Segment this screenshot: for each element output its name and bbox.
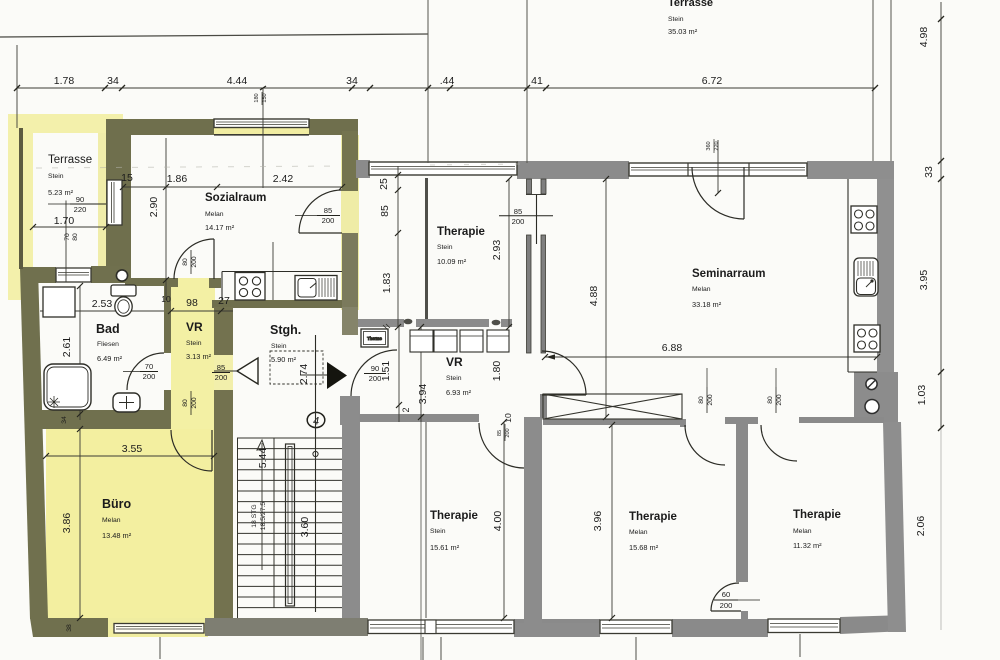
svg-text:Stein: Stein	[48, 173, 64, 180]
svg-text:Therapie: Therapie	[437, 226, 485, 238]
svg-text:90: 90	[76, 195, 84, 204]
svg-text:3.94: 3.94	[417, 384, 429, 405]
svg-text:Therapie: Therapie	[629, 511, 677, 523]
svg-text:Bad: Bad	[96, 322, 120, 336]
svg-text:10: 10	[503, 413, 513, 423]
svg-text:200: 200	[512, 217, 525, 226]
svg-text:5.44: 5.44	[257, 448, 269, 469]
svg-text:85: 85	[324, 206, 332, 215]
svg-text:35.03 m²: 35.03 m²	[668, 27, 698, 36]
svg-text:3.96: 3.96	[592, 511, 604, 532]
svg-text:200: 200	[322, 216, 335, 225]
svg-text:150: 150	[262, 93, 268, 102]
svg-text:2.93: 2.93	[491, 240, 503, 261]
svg-text:220: 220	[74, 205, 87, 214]
svg-text:Therapie: Therapie	[430, 510, 478, 522]
svg-text:VR: VR	[186, 320, 203, 334]
svg-text:3.95: 3.95	[918, 270, 930, 291]
svg-text:3.86: 3.86	[61, 513, 73, 534]
svg-text:80: 80	[72, 233, 79, 241]
svg-text:2: 2	[401, 407, 411, 412]
svg-text:38: 38	[66, 624, 73, 632]
svg-text:15.68 m²: 15.68 m²	[629, 543, 659, 552]
svg-text:1.51: 1.51	[380, 361, 392, 382]
svg-text:3.13 m²: 3.13 m²	[186, 352, 212, 361]
svg-text:70: 70	[64, 233, 71, 241]
svg-text:1.78: 1.78	[54, 75, 75, 87]
svg-text:34: 34	[61, 416, 68, 424]
svg-text:1.80: 1.80	[491, 361, 503, 382]
svg-text:5.90 m²: 5.90 m²	[271, 355, 297, 364]
svg-text:15.61 m²: 15.61 m²	[430, 543, 460, 552]
svg-text:14.17 m²: 14.17 m²	[205, 223, 235, 232]
svg-text:2.90: 2.90	[148, 197, 160, 218]
svg-text:80: 80	[182, 399, 189, 407]
svg-text:200: 200	[776, 394, 783, 406]
svg-text:85: 85	[497, 430, 503, 436]
svg-text:2.06: 2.06	[915, 516, 927, 537]
svg-text:70: 70	[145, 362, 153, 371]
svg-text:6.49 m²: 6.49 m²	[97, 354, 123, 363]
svg-text:1.83: 1.83	[381, 273, 393, 294]
svg-text:Therme: Therme	[367, 336, 382, 341]
svg-text:.44: .44	[440, 75, 455, 87]
svg-text:85: 85	[379, 205, 391, 217]
svg-text:34: 34	[107, 75, 119, 87]
svg-text:200: 200	[191, 397, 198, 409]
svg-text:85: 85	[217, 363, 225, 372]
svg-text:10.09 m²: 10.09 m²	[437, 257, 467, 266]
svg-text:200: 200	[215, 373, 228, 382]
svg-text:3.55: 3.55	[122, 443, 143, 455]
svg-text:18 STG: 18 STG	[251, 504, 258, 527]
svg-text:13.48 m²: 13.48 m²	[102, 531, 132, 540]
svg-text:200: 200	[505, 428, 511, 437]
svg-text:27: 27	[218, 295, 230, 307]
svg-text:Melan: Melan	[205, 211, 224, 218]
svg-text:2.42: 2.42	[273, 173, 294, 185]
svg-text:Melan: Melan	[629, 529, 648, 536]
svg-text:33: 33	[923, 166, 935, 178]
svg-text:98: 98	[186, 297, 198, 309]
svg-text:80: 80	[767, 396, 774, 404]
svg-text:Stein: Stein	[446, 375, 462, 382]
svg-text:Therapie: Therapie	[793, 509, 841, 521]
svg-text:Fliesen: Fliesen	[97, 341, 119, 348]
svg-text:Stgh.: Stgh.	[270, 323, 301, 337]
svg-text:200: 200	[720, 601, 733, 610]
svg-text:25: 25	[378, 178, 390, 190]
svg-text:85: 85	[514, 207, 522, 216]
svg-text:Melan: Melan	[692, 286, 711, 293]
svg-text:Seminarraum: Seminarraum	[692, 268, 766, 280]
svg-text:200: 200	[143, 372, 156, 381]
svg-text:VR: VR	[446, 355, 463, 369]
svg-text:41: 41	[531, 75, 543, 87]
svg-text:4.44: 4.44	[227, 75, 248, 87]
svg-text:220: 220	[714, 141, 720, 150]
svg-text:200: 200	[191, 256, 198, 268]
svg-text:Melan: Melan	[102, 517, 121, 524]
svg-text:1.03: 1.03	[916, 385, 928, 406]
svg-text:18.5/27.5: 18.5/27.5	[260, 502, 267, 531]
svg-text:4.00: 4.00	[492, 511, 504, 532]
svg-text:2.53: 2.53	[92, 298, 113, 310]
svg-text:Melan: Melan	[793, 528, 812, 535]
svg-text:1.86: 1.86	[167, 173, 188, 185]
svg-text:80: 80	[182, 258, 189, 266]
svg-text:6.93 m²: 6.93 m²	[446, 388, 472, 397]
svg-text:200: 200	[707, 394, 714, 406]
svg-text:Sozialraum: Sozialraum	[205, 192, 266, 204]
svg-text:15: 15	[121, 172, 133, 184]
svg-text:2.61: 2.61	[61, 337, 73, 358]
svg-text:10: 10	[161, 294, 171, 304]
svg-text:1.70: 1.70	[54, 215, 75, 227]
svg-text:33.18 m²: 33.18 m²	[692, 300, 722, 309]
svg-text:Stein: Stein	[430, 528, 446, 535]
svg-text:180: 180	[254, 93, 260, 102]
svg-text:Stein: Stein	[668, 16, 684, 23]
svg-text:80: 80	[698, 396, 705, 404]
svg-text:6.72: 6.72	[702, 75, 723, 87]
svg-text:Terrasse: Terrasse	[48, 154, 92, 166]
svg-text:60: 60	[722, 590, 730, 599]
svg-text:3.60: 3.60	[299, 517, 311, 538]
svg-text:11.32 m²: 11.32 m²	[793, 541, 822, 550]
svg-text:360: 360	[706, 141, 712, 150]
svg-text:Stein: Stein	[271, 343, 287, 350]
svg-text:Stein: Stein	[437, 244, 453, 251]
svg-text:Stein: Stein	[186, 340, 202, 347]
svg-text:6.88: 6.88	[662, 342, 683, 354]
svg-text:2.74: 2.74	[298, 364, 310, 385]
svg-text:Terrasse: Terrasse	[668, 0, 713, 9]
svg-text:Büro: Büro	[102, 497, 132, 511]
svg-text:5.23 m²: 5.23 m²	[48, 188, 74, 197]
svg-text:90: 90	[371, 364, 379, 373]
svg-text:4.98: 4.98	[918, 27, 930, 48]
svg-text:34: 34	[346, 75, 358, 87]
svg-text:4.88: 4.88	[588, 286, 600, 307]
